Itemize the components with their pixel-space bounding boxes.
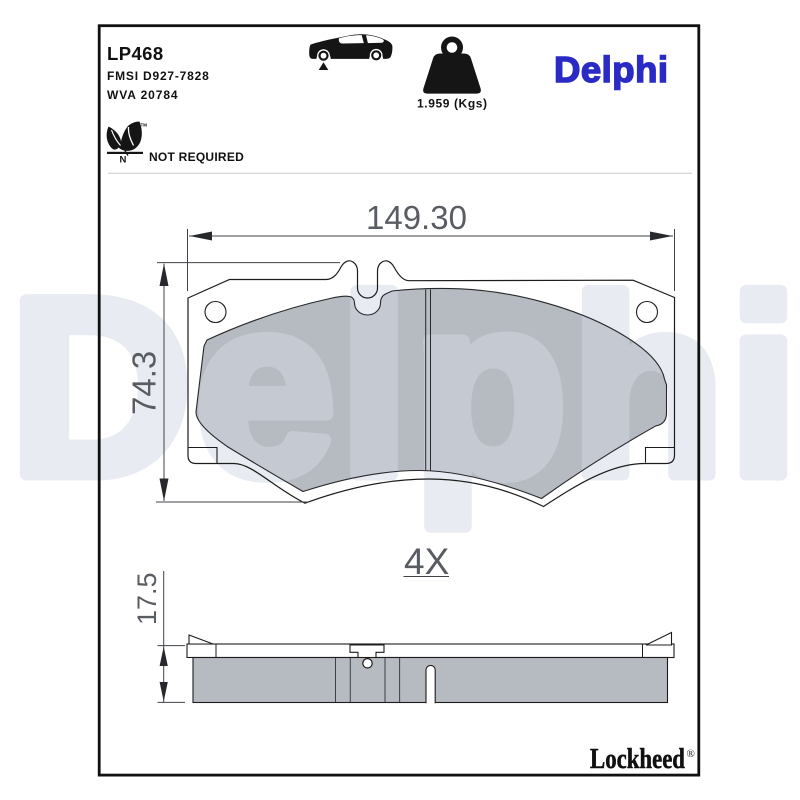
svg-text:1.959 (Kgs): 1.959 (Kgs) [417,97,488,111]
svg-text:Lockheed: Lockheed [590,744,685,775]
svg-text:17.5: 17.5 [132,572,162,625]
svg-text:74.3: 74.3 [126,351,163,415]
svg-text:LP468: LP468 [107,43,164,64]
svg-text:N: N [120,155,127,166]
svg-text:Delphi: Delphi [554,49,669,90]
svg-text:NOT REQUIRED: NOT REQUIRED [149,150,244,164]
svg-text:149.30: 149.30 [366,199,467,236]
svg-text:4X: 4X [404,541,449,582]
svg-text:FMSI D927-7828: FMSI D927-7828 [107,69,210,83]
svg-text:TM: TM [141,123,148,128]
svg-text:WVA 20784: WVA 20784 [107,88,178,102]
svg-text:®: ® [687,748,695,760]
